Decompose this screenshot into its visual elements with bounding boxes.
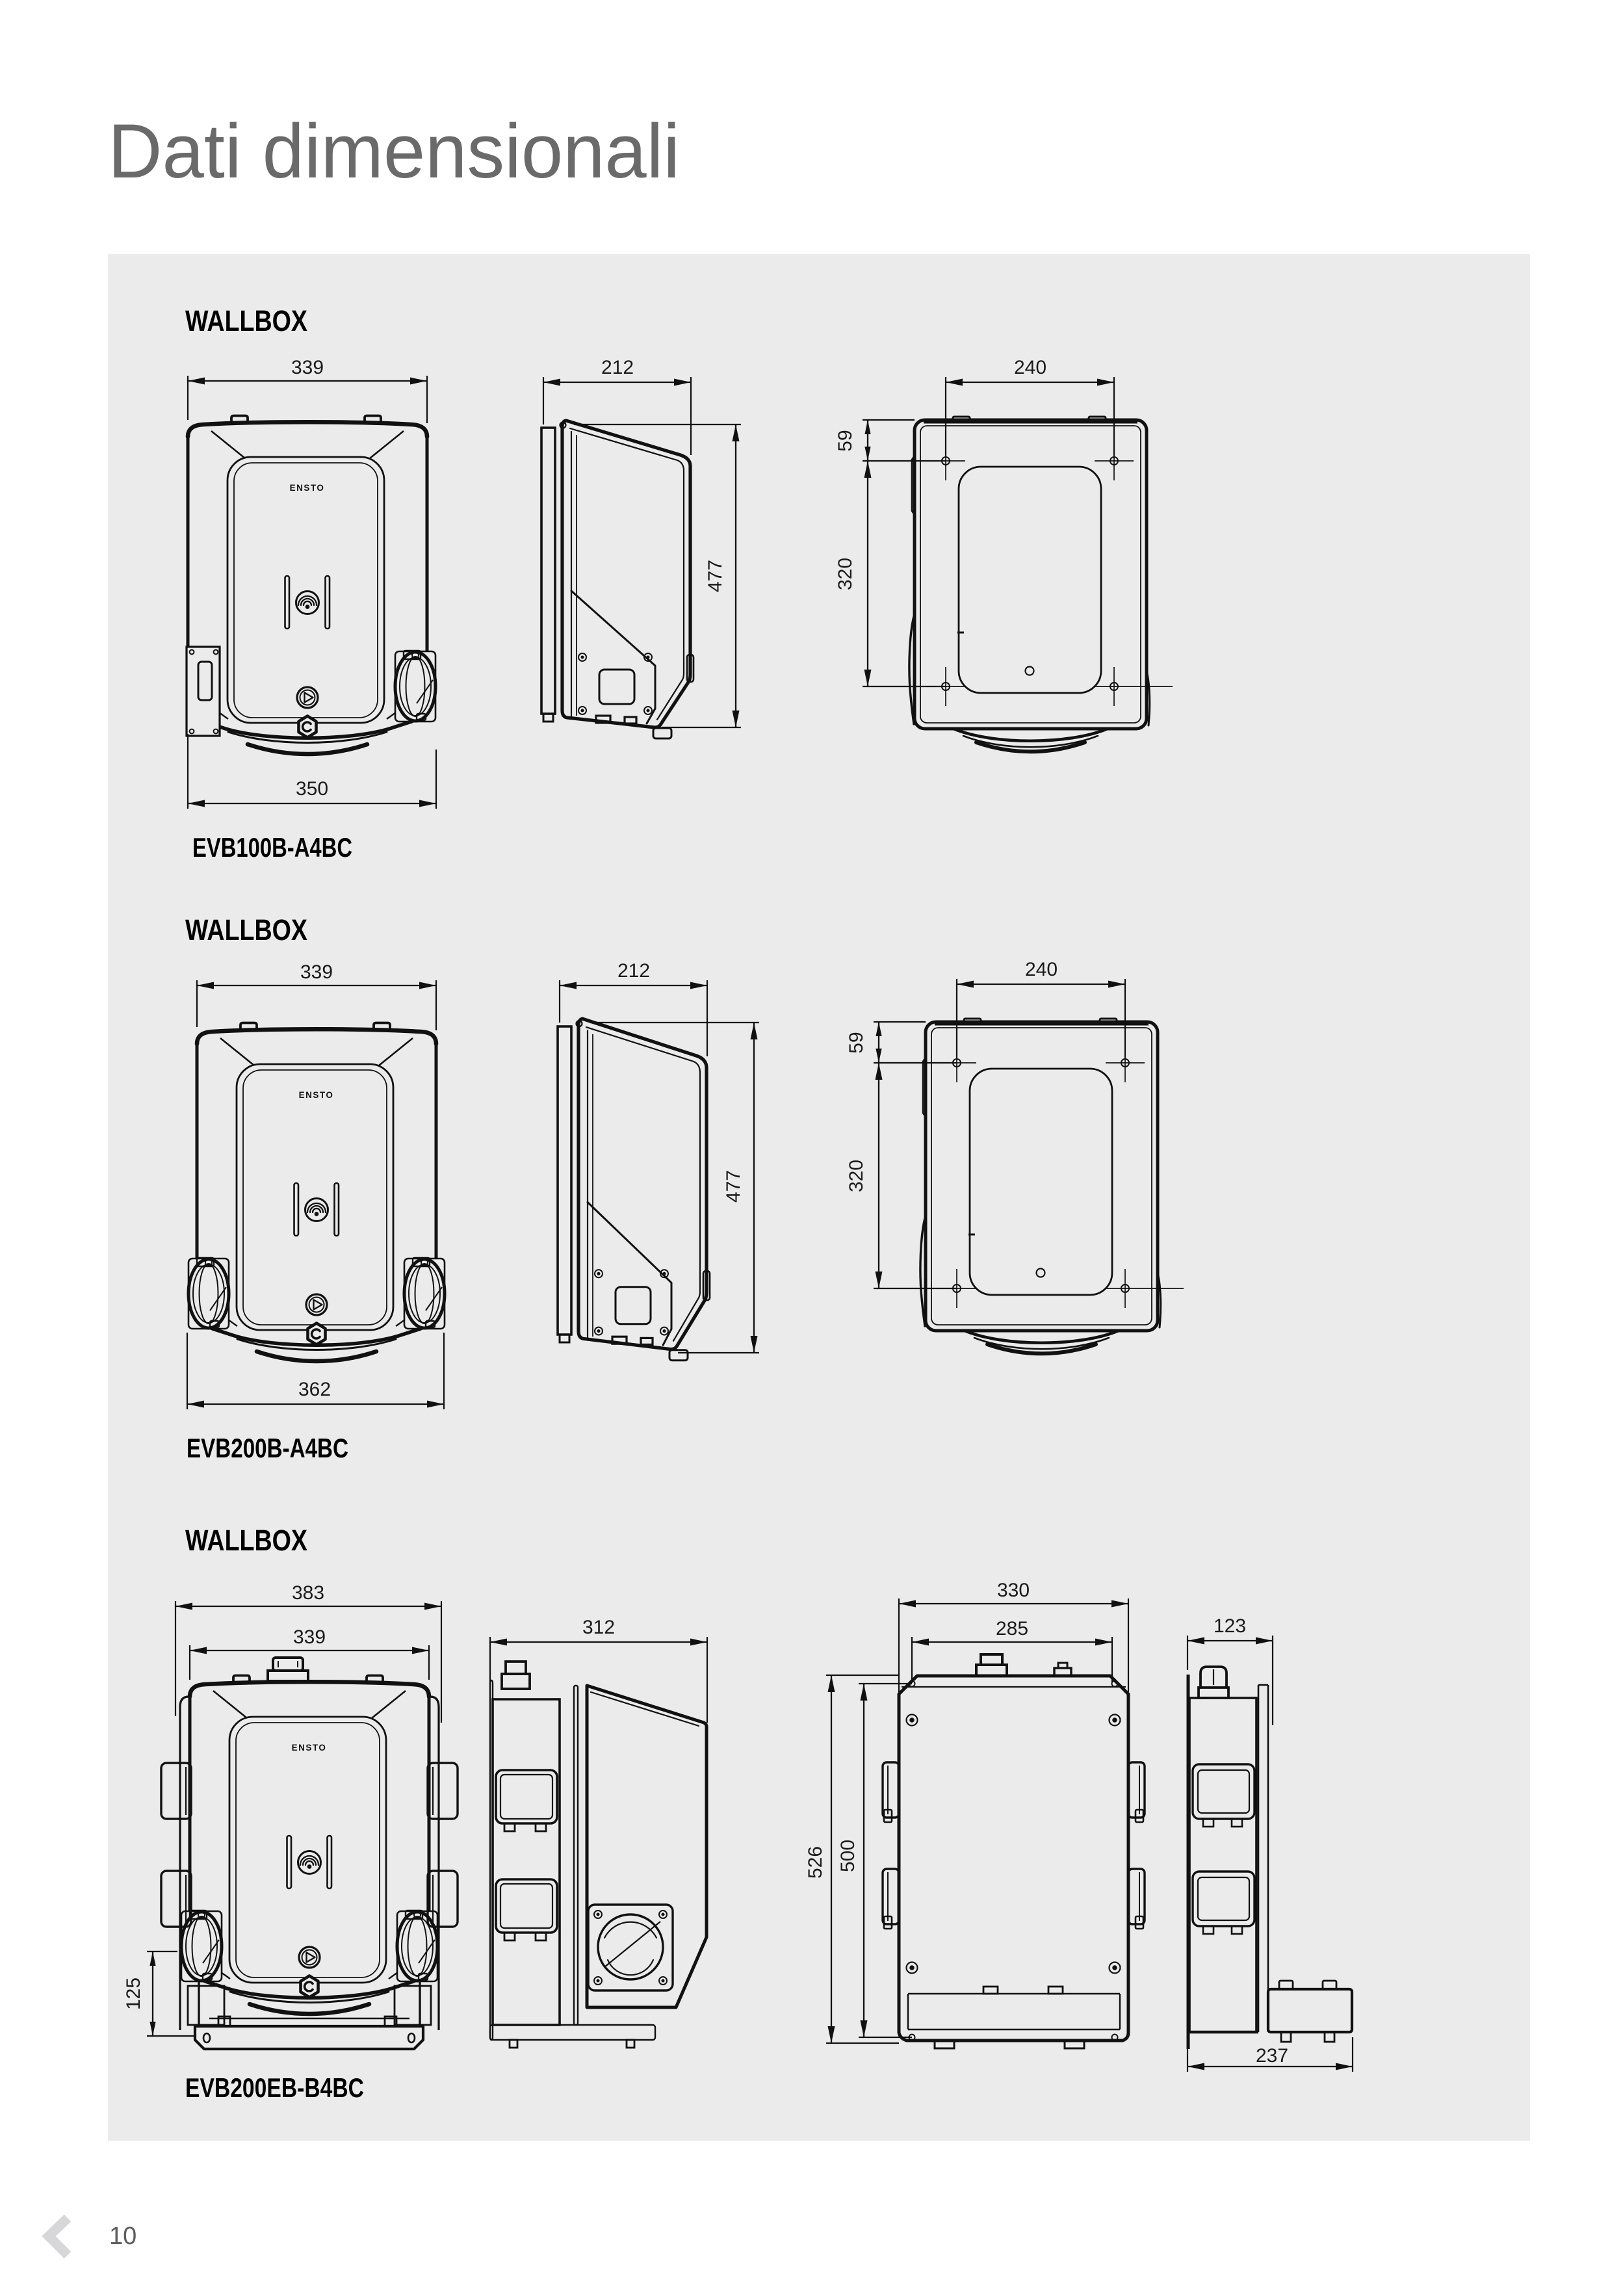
svg-text:240: 240: [1014, 357, 1046, 378]
svg-text:330: 330: [997, 1580, 1030, 1601]
svg-text:477: 477: [723, 1170, 744, 1203]
svg-text:WALLBOX: WALLBOX: [185, 1524, 307, 1557]
svg-text:ENSTO: ENSTO: [290, 483, 325, 493]
svg-text:285: 285: [996, 1618, 1028, 1639]
svg-text:339: 339: [291, 357, 324, 378]
svg-text:212: 212: [601, 357, 634, 378]
svg-text:383: 383: [292, 1582, 324, 1604]
svg-text:125: 125: [123, 1977, 144, 2010]
svg-text:500: 500: [837, 1840, 859, 1872]
svg-text:477: 477: [705, 560, 726, 592]
svg-text:526: 526: [805, 1846, 826, 1879]
svg-text:59: 59: [835, 430, 856, 451]
svg-text:350: 350: [296, 778, 328, 800]
svg-text:212: 212: [617, 960, 650, 982]
svg-text:ENSTO: ENSTO: [299, 1090, 334, 1100]
svg-text:362: 362: [298, 1379, 331, 1400]
svg-text:339: 339: [300, 961, 333, 983]
svg-text:320: 320: [846, 1160, 867, 1192]
svg-text:240: 240: [1025, 959, 1058, 980]
svg-text:WALLBOX: WALLBOX: [185, 304, 307, 337]
svg-text:EVB100B-A4BC: EVB100B-A4BC: [192, 832, 352, 863]
svg-text:123: 123: [1214, 1615, 1246, 1637]
svg-text:339: 339: [293, 1626, 326, 1648]
svg-text:312: 312: [582, 1617, 615, 1638]
svg-text:Dati dimensionali: Dati dimensionali: [108, 109, 680, 194]
svg-text:EVB200EB-B4BC: EVB200EB-B4BC: [185, 2072, 364, 2103]
svg-text:237: 237: [1256, 2045, 1288, 2067]
svg-text:59: 59: [846, 1032, 867, 1053]
svg-text:10: 10: [109, 2223, 136, 2250]
svg-text:ENSTO: ENSTO: [292, 1743, 327, 1753]
svg-text:WALLBOX: WALLBOX: [185, 913, 307, 946]
svg-text:EVB200B-A4BC: EVB200B-A4BC: [187, 1433, 348, 1463]
svg-text:320: 320: [835, 558, 856, 590]
